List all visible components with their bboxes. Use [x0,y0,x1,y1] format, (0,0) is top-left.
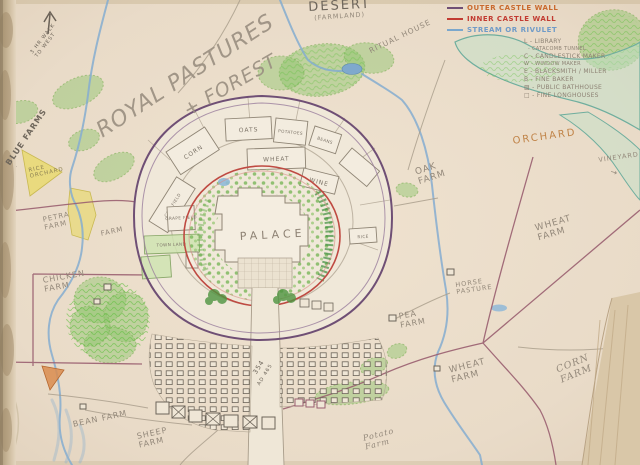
oats-plot-label: OATS [239,126,259,134]
key-line: □ - FINE LONGHOUSES [524,92,607,100]
rice-plot-label: RICE [357,234,369,240]
key-line: C - CANDLESTICK MAKER [524,53,607,61]
scanned-map-page: CORN OATS POTATOES BEANS WHEAT WINE RICE [0,0,640,465]
torn-left-edge [0,0,16,465]
key-line: - CATACOMB TUNNEL [524,46,607,53]
town-east [280,338,387,407]
legend-row-inner-wall: INNER CASTLE WALL [447,15,558,23]
crop-plot-potatoes: POTATOES [273,118,307,145]
horse-pasture-pond [491,305,507,312]
legend: OUTER CASTLE WALL INNER CASTLE WALL STRE… [447,4,558,37]
legend-key: L - LIBRARY - CATACOMB TUNNEL C - CANDLE… [524,38,607,100]
inner-wall-swatch [447,18,463,20]
crop-plot-rice: RICE [349,227,377,244]
legend-row-stream: STREAM OR RIVULET [447,26,558,34]
stream-legend-label: STREAM OR RIVULET [467,26,557,34]
inner-wall-legend-label: INNER CASTLE WALL [467,15,556,23]
crop-plot-oats: OATS [225,117,272,141]
town-land-label: TOWN LAND [155,242,186,248]
key-line: ▨ - PUBLIC BATHHOUSE [524,84,607,92]
key-line: L - LIBRARY [524,38,607,46]
key-line: E - BLACKSMITH / MILLER [524,68,607,76]
garden-pond [218,178,230,186]
wheat-plot-label: WHEAT [263,156,290,164]
stream-swatch [447,29,463,31]
outer-wall-swatch [447,7,463,9]
outer-wall-legend-label: OUTER CASTLE WALL [467,4,558,12]
key-line: B - FINE BAKER [524,76,607,84]
legend-row-outer-wall: OUTER CASTLE WALL [447,4,558,12]
key-line: W - WINDOW MAKER [524,61,607,68]
desert-pond [342,64,362,75]
